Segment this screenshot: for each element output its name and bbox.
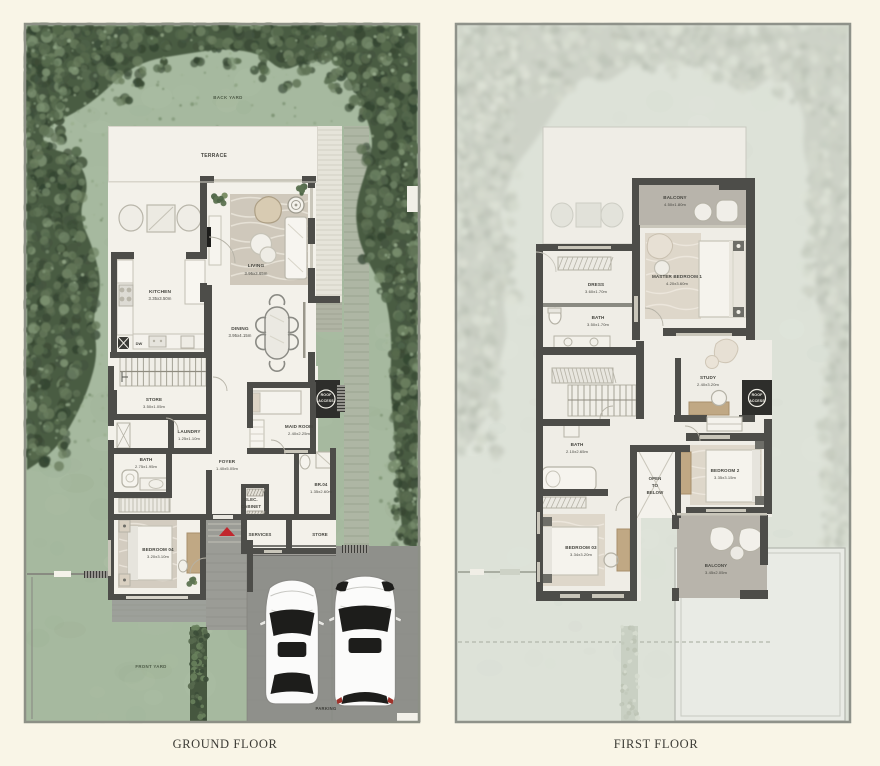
svg-text:OPEN: OPEN: [649, 476, 662, 481]
svg-text:2.75x1.95m: 2.75x1.95m: [135, 464, 157, 469]
svg-text:3.34x3.20m: 3.34x3.20m: [570, 552, 592, 557]
svg-text:2.40x2.25m: 2.40x2.25m: [288, 431, 310, 436]
svg-text:DRESS: DRESS: [588, 282, 604, 287]
svg-text:ACCESS: ACCESS: [749, 399, 765, 403]
svg-text:MASTER BEDROOM 1: MASTER BEDROOM 1: [652, 274, 702, 279]
svg-text:FRONT YARD: FRONT YARD: [135, 664, 166, 669]
svg-text:LAUNDRY: LAUNDRY: [178, 429, 201, 434]
svg-text:3.95x3.65m: 3.95x3.65m: [245, 271, 268, 276]
svg-text:TERRACE: TERRACE: [201, 153, 228, 159]
svg-text:STUDY: STUDY: [700, 375, 716, 380]
svg-text:BALCONY: BALCONY: [705, 563, 727, 568]
svg-text:DW: DW: [136, 341, 143, 346]
svg-text:FOYER: FOYER: [219, 459, 236, 464]
svg-text:ROOF: ROOF: [321, 393, 332, 397]
svg-text:KITCHEN: KITCHEN: [149, 289, 171, 295]
svg-text:3.50x1.05m: 3.50x1.05m: [143, 404, 165, 409]
svg-text:BR.04: BR.04: [315, 482, 328, 487]
svg-text:BACK YARD: BACK YARD: [213, 95, 242, 100]
svg-text:FIRST FLOOR: FIRST FLOOR: [614, 737, 699, 751]
svg-text:4.50x1.80m: 4.50x1.80m: [664, 202, 686, 207]
svg-text:3.35x3.15m: 3.35x3.15m: [714, 475, 736, 480]
svg-text:STORE: STORE: [146, 397, 162, 402]
svg-text:ROOF: ROOF: [752, 393, 763, 397]
svg-text:BATH: BATH: [592, 315, 605, 320]
svg-text:1.35x2.60m: 1.35x2.60m: [310, 489, 332, 494]
svg-text:3.20x3.10m: 3.20x3.10m: [147, 554, 169, 559]
svg-text:ELEC.: ELEC.: [244, 497, 257, 502]
svg-text:DINING: DINING: [231, 326, 249, 332]
svg-text:BEDROOM 04: BEDROOM 04: [142, 547, 174, 552]
svg-text:BELOW: BELOW: [647, 490, 665, 495]
svg-text:3.60x1.70m: 3.60x1.70m: [585, 289, 607, 294]
svg-text:PARKING: PARKING: [315, 706, 336, 711]
svg-text:2.40x3.20m: 2.40x3.20m: [697, 382, 719, 387]
svg-text:ACCESS: ACCESS: [318, 399, 334, 403]
svg-text:1.25x1.10m: 1.25x1.10m: [178, 436, 200, 441]
svg-text:3.50x1.70m: 3.50x1.70m: [587, 322, 609, 327]
svg-text:1.40x5.05m: 1.40x5.05m: [216, 466, 238, 471]
svg-text:TO: TO: [652, 483, 659, 488]
svg-text:BEDROOM 03: BEDROOM 03: [565, 545, 597, 550]
svg-text:4.20x3.60m: 4.20x3.60m: [666, 281, 688, 286]
svg-text:BATH: BATH: [140, 457, 153, 462]
svg-text:LIVING: LIVING: [248, 263, 265, 269]
svg-text:BALCONY: BALCONY: [663, 195, 686, 200]
svg-text:2.10x2.65m: 2.10x2.65m: [566, 449, 588, 454]
svg-text:BATH: BATH: [571, 442, 584, 447]
svg-text:CABINET: CABINET: [241, 504, 261, 509]
svg-text:GROUND FLOOR: GROUND FLOOR: [173, 737, 278, 751]
svg-text:MAID ROOM: MAID ROOM: [285, 424, 313, 429]
svg-text:3.45x2.05m: 3.45x2.05m: [705, 570, 727, 575]
svg-text:3.95x4.15m: 3.95x4.15m: [229, 333, 252, 338]
svg-text:STORE: STORE: [312, 532, 328, 537]
svg-text:SERVICES: SERVICES: [249, 532, 272, 537]
svg-text:3.35x3.50m: 3.35x3.50m: [149, 296, 172, 301]
svg-text:BEDROOM 2: BEDROOM 2: [711, 468, 740, 473]
